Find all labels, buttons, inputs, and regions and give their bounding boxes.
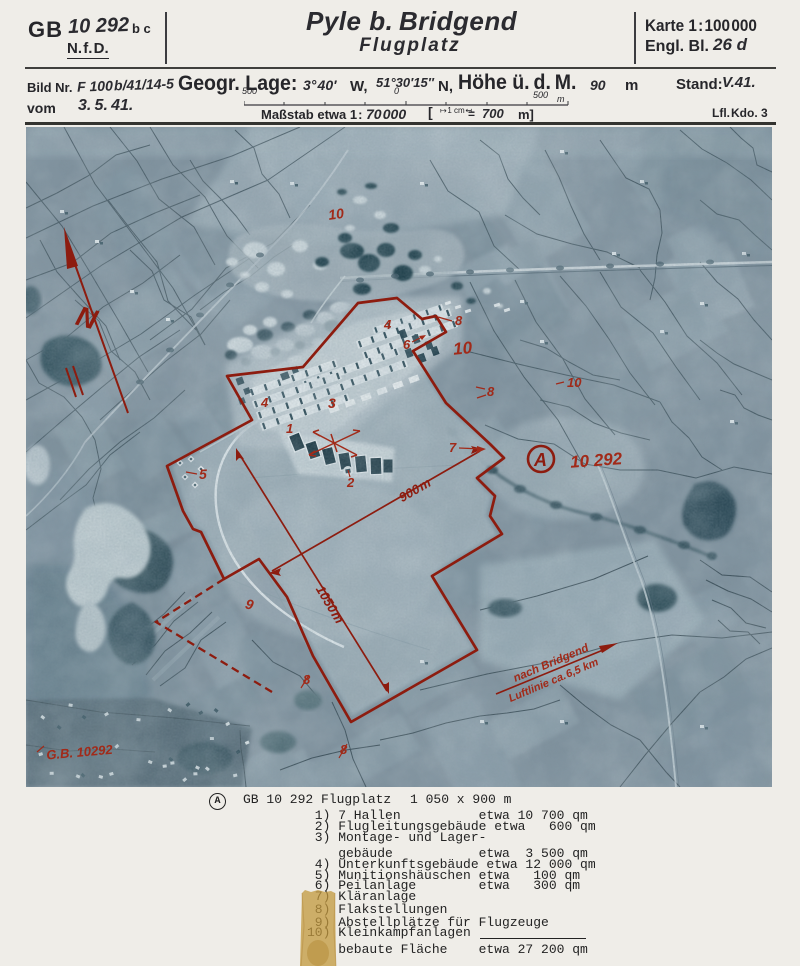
svg-text:7: 7 (449, 440, 457, 455)
svg-text:10 292: 10 292 (570, 449, 624, 472)
svg-text:8: 8 (487, 384, 495, 399)
svg-text:10: 10 (452, 338, 473, 359)
svg-text:10: 10 (567, 375, 582, 390)
svg-text:A: A (533, 450, 547, 470)
svg-text:10: 10 (327, 205, 345, 223)
svg-text:3: 3 (328, 395, 336, 411)
svg-text:6: 6 (403, 337, 411, 352)
svg-text:1: 1 (286, 421, 293, 436)
svg-text:2: 2 (346, 475, 355, 490)
svg-text:4: 4 (260, 395, 269, 410)
svg-text:5: 5 (199, 466, 207, 482)
svg-text:8: 8 (455, 313, 463, 328)
svg-text:4: 4 (383, 317, 392, 332)
svg-text:8: 8 (303, 672, 311, 687)
